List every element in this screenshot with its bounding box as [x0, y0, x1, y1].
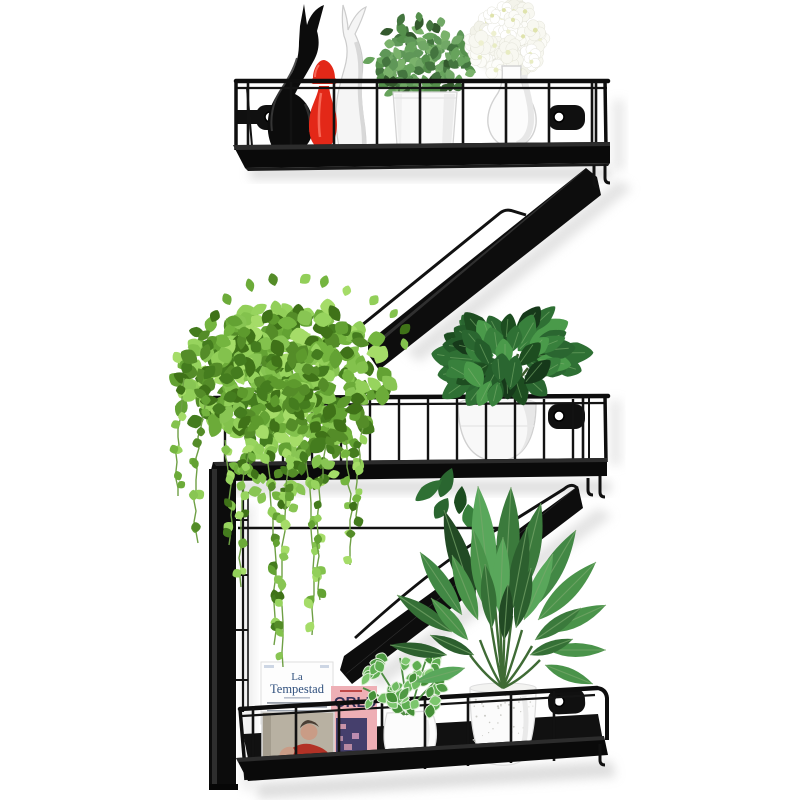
svg-text:Tempestad: Tempestad	[270, 682, 325, 696]
